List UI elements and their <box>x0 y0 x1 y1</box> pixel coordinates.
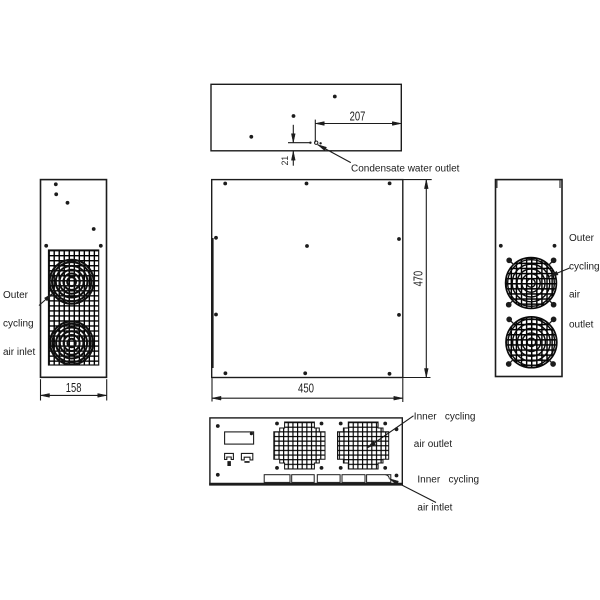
svg-text:cycling: cycling <box>3 319 34 330</box>
svg-text:air intlet: air intlet <box>417 503 452 514</box>
svg-text:158: 158 <box>66 381 82 395</box>
svg-text:207: 207 <box>350 110 366 124</box>
svg-text:Inner cycling: Inner cycling <box>414 411 476 422</box>
svg-text:Outer: Outer <box>569 233 595 244</box>
svg-text:450: 450 <box>298 382 314 396</box>
svg-text:air inlet: air inlet <box>3 347 35 358</box>
svg-text:outlet: outlet <box>569 320 594 331</box>
svg-text:Inner cycling: Inner cycling <box>417 475 479 486</box>
svg-text:air: air <box>569 290 581 301</box>
svg-text:air outlet: air outlet <box>414 439 453 450</box>
svg-text:cycling: cycling <box>569 262 600 273</box>
svg-text:21: 21 <box>280 156 291 166</box>
svg-text:Outer: Outer <box>3 290 29 301</box>
svg-text:470: 470 <box>411 271 425 287</box>
svg-text:Condensate water outlet: Condensate water outlet <box>351 164 460 175</box>
